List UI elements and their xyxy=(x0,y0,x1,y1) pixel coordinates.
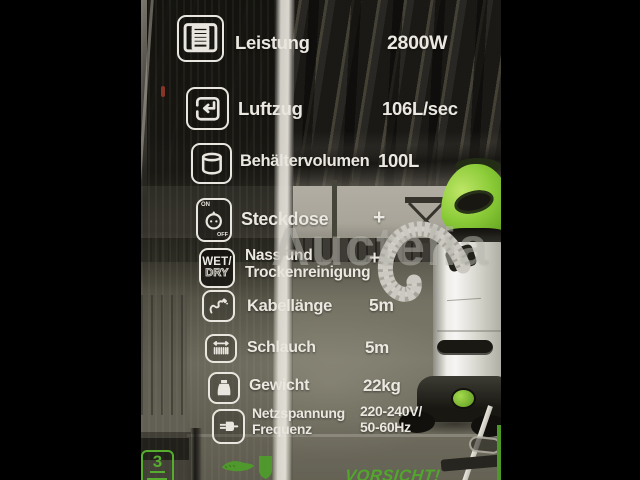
stacking-layers-number: 3 xyxy=(150,453,165,473)
spec-value: 22kg xyxy=(363,376,401,395)
spec-label: Netzspannung Frequenz xyxy=(252,406,345,437)
spec-value: 5m xyxy=(369,296,394,316)
dry-label: DRY xyxy=(205,268,228,279)
spec-value: 2800W xyxy=(387,33,447,55)
spec-label: Leistung xyxy=(235,33,310,54)
spec-value: 220-240V/ 50-60Hz xyxy=(360,404,422,435)
shield-pictogram xyxy=(258,455,273,480)
socket-off-label: OFF xyxy=(217,232,228,238)
vorsicht-warning-text: VORSICHT! xyxy=(344,467,441,480)
motor-icon xyxy=(177,15,224,62)
spec-value: 100L xyxy=(378,151,419,172)
spec-value: 5m xyxy=(365,338,389,357)
crocodile-pictogram xyxy=(221,457,255,475)
stacking-layers-symbol: 3 xyxy=(141,450,174,480)
power-socket-icon: ON OFF xyxy=(196,198,232,242)
product-photo: Leistung 2800W Luftzug 106L/sec Behälter… xyxy=(141,0,501,480)
weight-icon xyxy=(208,372,240,404)
red-reflection-speck xyxy=(161,86,165,97)
hose-icon xyxy=(205,334,237,363)
socket-on-label: ON xyxy=(201,202,210,208)
box-panel-gap xyxy=(190,428,202,480)
airflow-icon xyxy=(186,87,229,130)
plug-icon xyxy=(212,409,245,444)
cable-icon xyxy=(202,290,235,322)
spec-value: 106L/sec xyxy=(382,99,458,120)
wet-dry-icon: WET/ DRY xyxy=(199,248,235,288)
spec-label: Behältervolumen xyxy=(240,152,369,170)
auctelia-watermark: Auctelia xyxy=(271,216,489,278)
photo-letterbox-frame: Leistung 2800W Luftzug 106L/sec Behälter… xyxy=(0,0,640,480)
container-icon xyxy=(191,143,232,184)
door-frame-edge xyxy=(141,0,147,200)
